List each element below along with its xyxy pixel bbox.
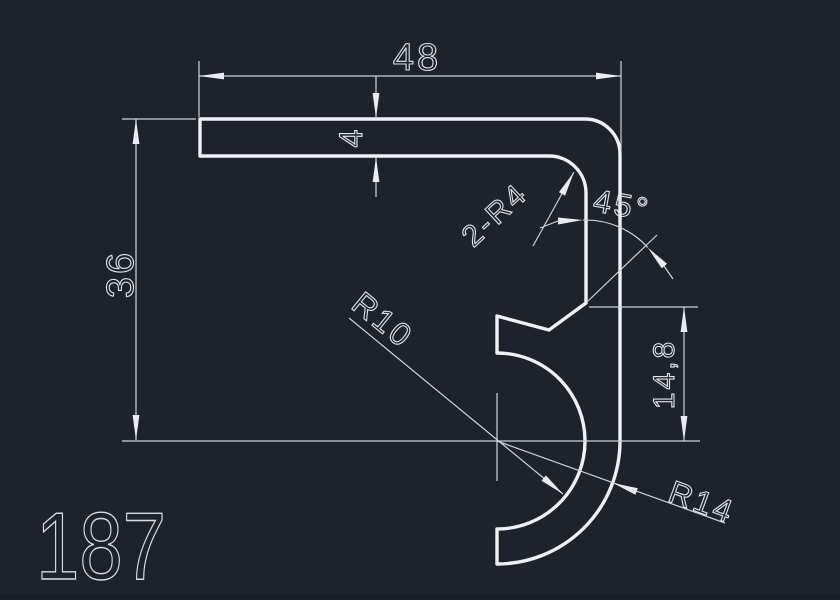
- arrowhead-down: [681, 416, 688, 441]
- arrowhead-up: [681, 307, 688, 332]
- chamfer-extension-line: [588, 235, 657, 301]
- arrowhead-down: [133, 415, 140, 440]
- bottom-edge-shade: [0, 594, 840, 600]
- leader-line: [349, 318, 563, 494]
- arrowhead-right: [596, 73, 621, 80]
- dimension-width-48[interactable]: 48: [199, 37, 621, 151]
- dimension-thickness-4[interactable]: 4: [333, 76, 379, 197]
- dimension-inner-radius-R10[interactable]: R10: [345, 285, 563, 494]
- dim-thickness-label: 4: [333, 127, 369, 148]
- dimension-corner-radius-2R4[interactable]: 2-R4: [456, 172, 574, 253]
- dimension-height-36[interactable]: 36: [100, 119, 196, 440]
- arrowhead-left: [199, 73, 224, 80]
- centerlines[interactable]: [122, 393, 700, 481]
- dim-notch-label: 14,8: [648, 339, 681, 409]
- part-number-label: 187: [36, 493, 166, 600]
- dimension-notch-14-8[interactable]: 14,8: [589, 307, 698, 441]
- cad-drawing: 48 4 36 14,8 2-R4 45°: [0, 0, 840, 600]
- arrow-tail: [664, 266, 673, 279]
- cad-drawing-canvas[interactable]: 48 4 36 14,8 2-R4 45°: [0, 0, 840, 600]
- dim-height-label: 36: [100, 250, 142, 298]
- dim-outer-radius-label: R14: [664, 474, 740, 531]
- arrowhead-left: [558, 218, 583, 225]
- dimension-angle-45[interactable]: 45°: [540, 182, 673, 301]
- arrow-tail: [540, 221, 558, 228]
- arrowhead: [542, 475, 564, 494]
- arrowhead-down: [373, 93, 380, 118]
- dim-width-label: 48: [393, 37, 441, 79]
- arrowhead: [613, 483, 638, 495]
- dim-corner-radius-label: 2-R4: [456, 177, 535, 254]
- dim-inner-radius-label: R10: [345, 285, 420, 356]
- arrowhead: [559, 172, 574, 196]
- arrowhead-up: [133, 119, 140, 144]
- arrowhead-right: [648, 248, 667, 269]
- arrowhead-up: [373, 157, 380, 182]
- profile-outline[interactable]: [200, 119, 620, 564]
